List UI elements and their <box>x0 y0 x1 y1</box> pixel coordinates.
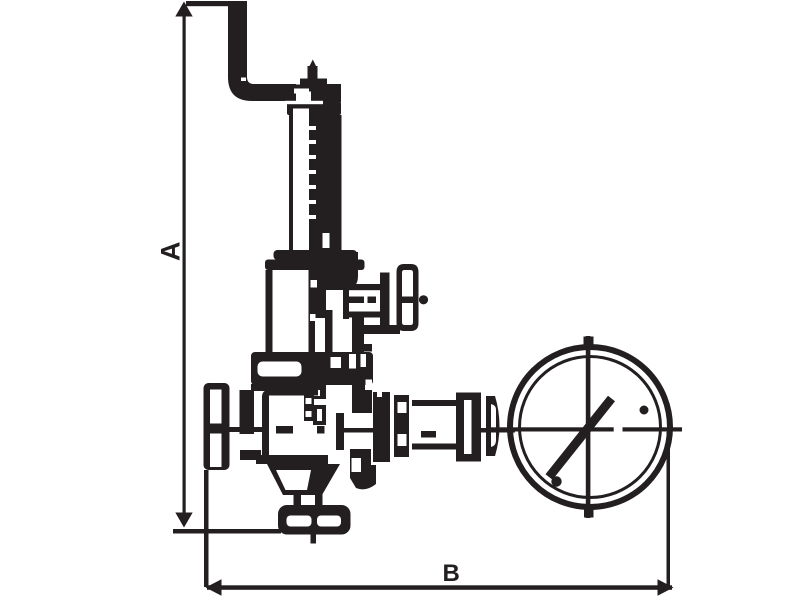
svg-text:A: A <box>156 242 186 262</box>
svg-text:B: B <box>443 560 460 587</box>
